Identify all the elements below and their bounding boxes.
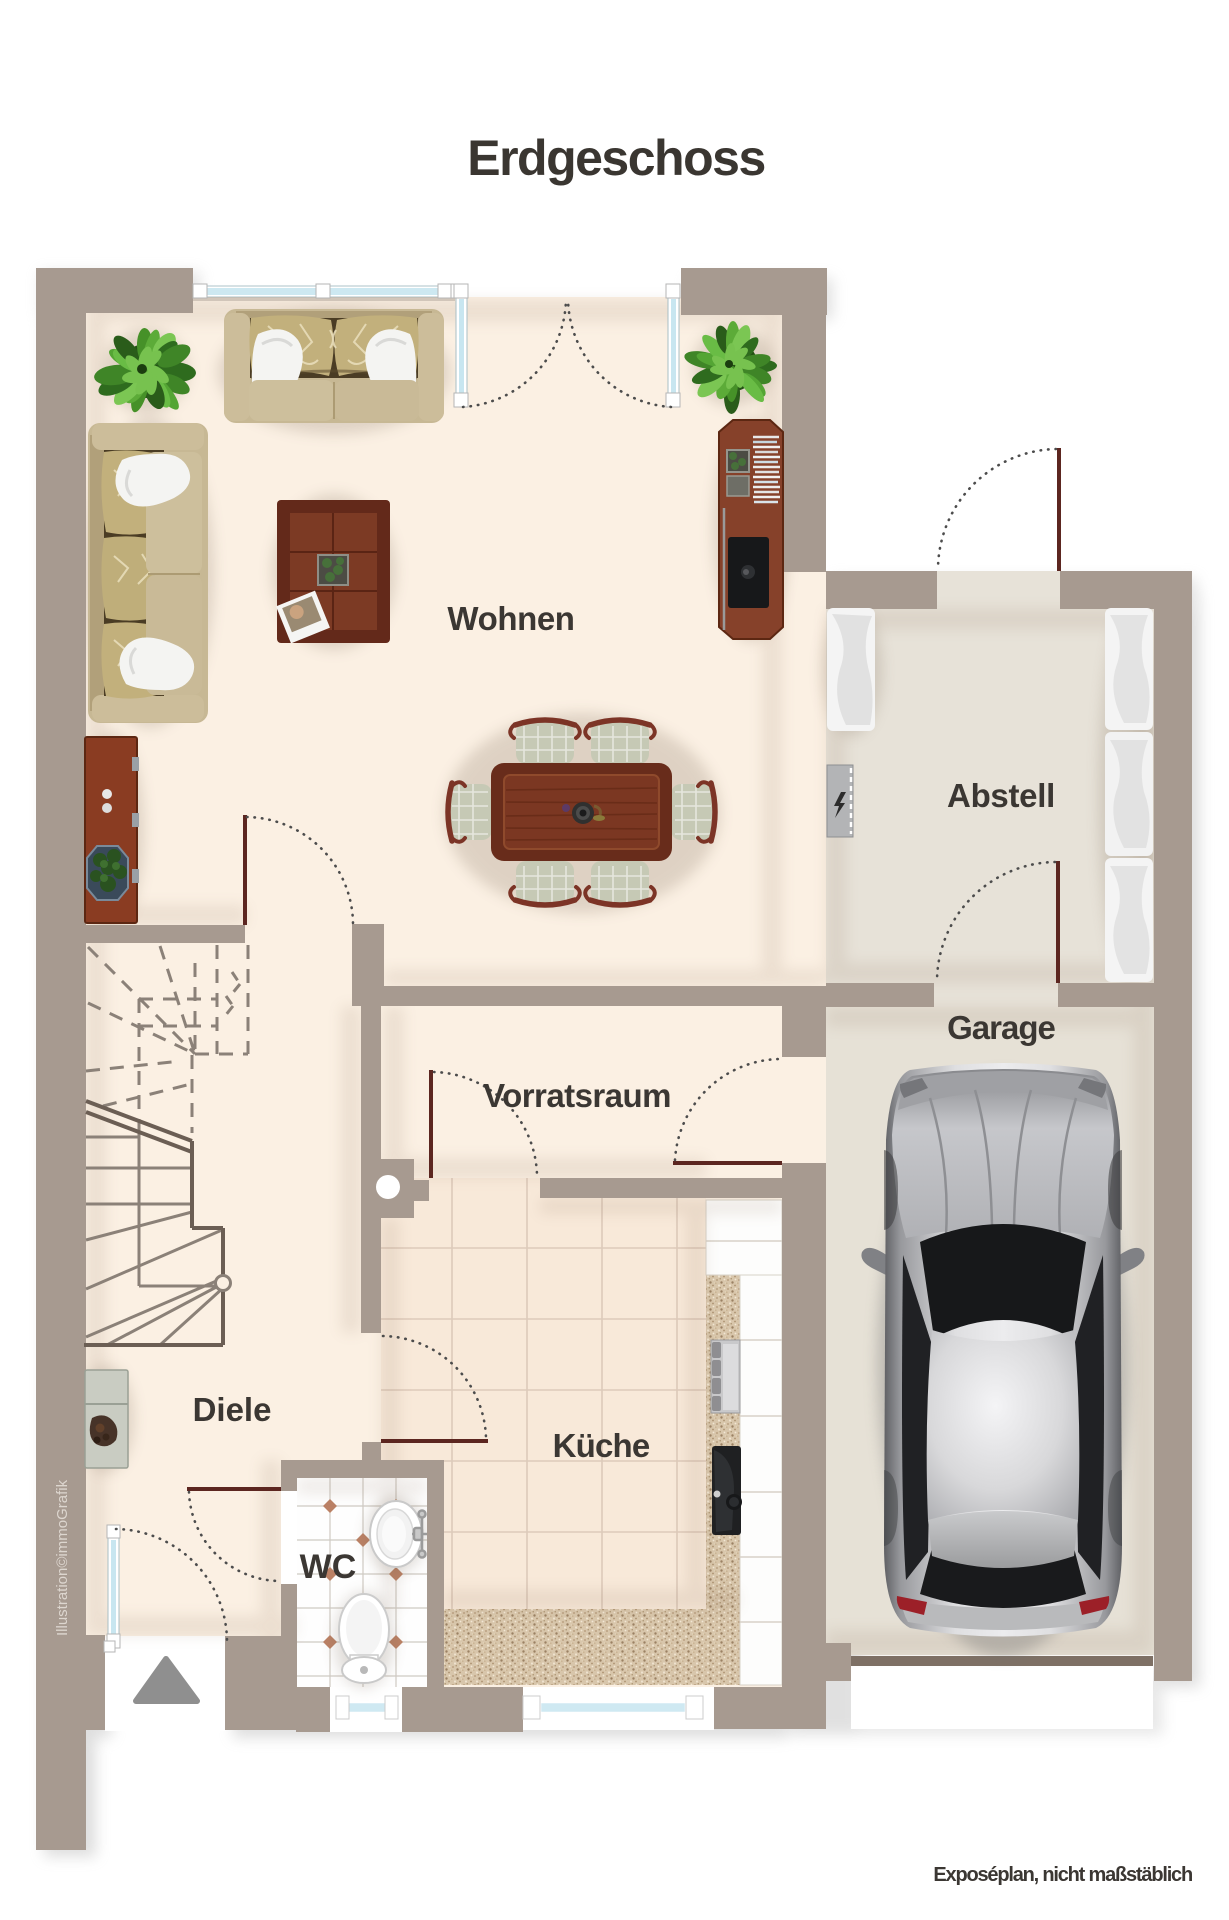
svg-text:Exposéplan, nicht maßstäblich: Exposéplan, nicht maßstäblich <box>933 1864 1192 1886</box>
svg-text:Vorratsraum: Vorratsraum <box>483 1077 671 1114</box>
svg-text:Garage: Garage <box>947 1009 1055 1046</box>
svg-text:WC: WC <box>300 1548 357 1586</box>
svg-text:Küche: Küche <box>553 1427 650 1464</box>
svg-text:Abstell: Abstell <box>947 777 1055 814</box>
svg-text:Diele: Diele <box>193 1391 272 1428</box>
svg-text:Wohnen: Wohnen <box>447 600 574 637</box>
svg-text:Illustration©immoGrafik: Illustration©immoGrafik <box>54 1479 71 1636</box>
svg-text:Erdgeschoss: Erdgeschoss <box>467 130 765 186</box>
